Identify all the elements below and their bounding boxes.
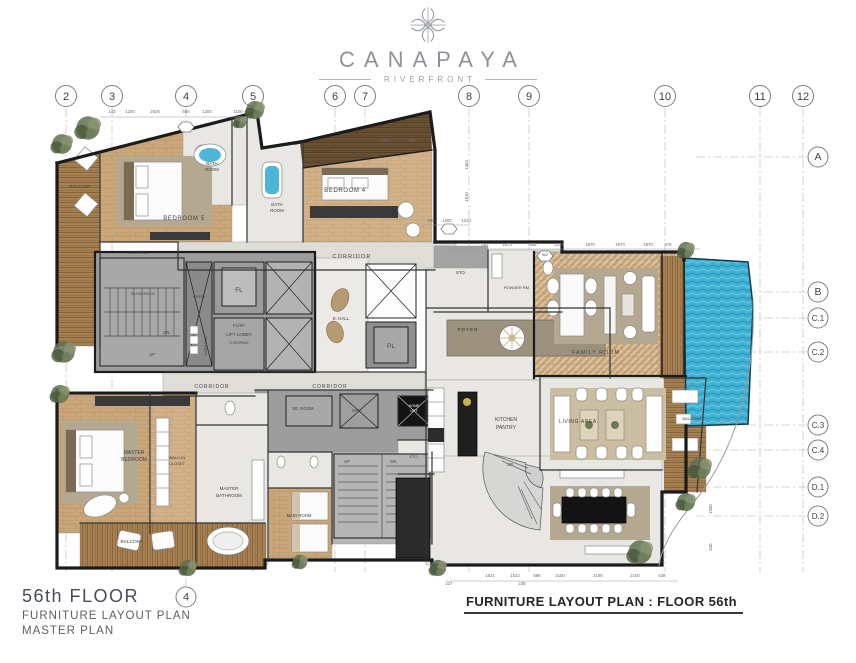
dining-chair xyxy=(566,524,574,533)
dimension-text: 1310 xyxy=(461,218,471,223)
grid-label-row-C.4: C.4 xyxy=(812,446,825,455)
dimension-text: 1870 xyxy=(585,242,595,247)
sheet-title: FURNITURE LAYOUT PLAN : FLOOR 56th xyxy=(464,594,743,614)
room-label: WALK-IN xyxy=(169,455,186,460)
dimension-text: 700 xyxy=(480,242,488,247)
room-label: DN. xyxy=(163,330,171,335)
dimension-text: 1870 xyxy=(643,242,653,247)
room-label: SAN. xyxy=(352,408,362,413)
plan-subtitle-1: FURNITURE LAYOUT PLAN xyxy=(22,610,191,622)
living-chair xyxy=(576,388,587,401)
room-label: BALCONY xyxy=(121,539,145,545)
dining-chair xyxy=(578,488,586,497)
room-balcony-left xyxy=(57,152,100,346)
dimension-text: 555 xyxy=(529,242,537,247)
room-label: BALCONY xyxy=(69,184,91,189)
grid-label-col-4: 4 xyxy=(183,91,189,103)
dimension-text: 378 xyxy=(664,242,672,247)
dimension-text: 1522 xyxy=(510,573,520,578)
hex-marker xyxy=(178,122,194,132)
bed4-pillow xyxy=(352,178,368,188)
bed5-pillow xyxy=(136,166,148,188)
dining-chair xyxy=(590,524,598,533)
room-label: W2 xyxy=(542,252,549,257)
room-label: CORRIDOR xyxy=(333,254,372,260)
dimension-text: 698 xyxy=(533,573,541,578)
bed4-chair xyxy=(398,202,414,218)
room-label: ROOM xyxy=(270,208,284,213)
maid-toilet xyxy=(277,456,285,468)
dimension-text: 2190 xyxy=(593,573,603,578)
dimension-text: 1873 xyxy=(502,242,512,247)
powder-toilet xyxy=(543,261,553,275)
dining-chair xyxy=(602,524,610,533)
dining-chair xyxy=(578,524,586,533)
master-side-table xyxy=(119,493,129,503)
master-headboard xyxy=(66,430,76,492)
bed4-pillow xyxy=(328,178,344,188)
room-label: KITCHEN xyxy=(495,417,517,423)
dining-chair-end xyxy=(627,503,635,517)
titleblock: 56th FLOOR FURNITURE LAYOUT PLAN MASTER … xyxy=(22,586,191,637)
plan-subtitle-2: MASTER PLAN xyxy=(22,625,191,637)
bed4-chair xyxy=(406,223,420,237)
rule-left xyxy=(319,79,371,80)
bed4-headboard xyxy=(322,168,388,175)
room-label: FL xyxy=(235,287,243,294)
brand-name: CANAPAYA xyxy=(330,47,526,73)
service-counter xyxy=(396,478,430,558)
room-label: E. HALL xyxy=(333,316,350,321)
room-label: UP xyxy=(344,459,350,464)
bathtub4-water xyxy=(265,166,279,194)
dining-table xyxy=(562,497,626,523)
dining-chair xyxy=(566,488,574,497)
room-label: GARBAGE xyxy=(203,336,208,356)
grid-label-col-11: 11 xyxy=(754,91,765,103)
room-label: DN. xyxy=(390,459,397,464)
room-label: LIFT LOBBY xyxy=(226,332,251,337)
room-maid-bath xyxy=(268,452,332,488)
dimension-text: 1500 xyxy=(708,504,713,514)
console xyxy=(560,470,624,478)
living-plant xyxy=(611,421,619,429)
brand-header: CANAPAYA RIVERFRONT xyxy=(0,4,856,84)
master-pillow xyxy=(80,436,92,458)
grid-label-row-D.1: D.1 xyxy=(812,483,825,492)
lounge-chair xyxy=(151,531,175,551)
dimension-text: 1083 xyxy=(381,138,391,143)
closet-island xyxy=(156,418,169,506)
dimension-text: 470 xyxy=(252,109,260,114)
bed5-pillow xyxy=(136,194,148,216)
room-label: BATHROOM xyxy=(216,493,242,498)
drawing-sheet: CANAPAYA RIVERFRONT xyxy=(0,0,856,663)
family-coffee-table xyxy=(622,294,634,316)
room-label: FOYER xyxy=(458,327,479,332)
dimension-text: 590 xyxy=(427,218,435,223)
bathtub5-water xyxy=(199,148,221,162)
room-label: EE. ROOM xyxy=(293,406,314,411)
room-label: PL xyxy=(387,343,395,350)
bed4-wardrobe xyxy=(310,206,398,218)
dimension-text: 1521 xyxy=(485,573,495,578)
grid-label-col-3: 3 xyxy=(109,91,115,103)
room-label: CORRIDOR xyxy=(194,384,229,390)
living-chair xyxy=(632,446,643,459)
dimension-text: 640 xyxy=(708,543,713,551)
room-label: MASTER xyxy=(220,486,240,491)
outdoor-sofa xyxy=(672,390,698,403)
family-chair xyxy=(585,278,597,294)
dining-chair xyxy=(614,488,622,497)
room-label: BALCONY xyxy=(682,416,701,421)
grid-label-row-C.2: C.2 xyxy=(812,348,825,357)
room-label: POWDER RM. xyxy=(504,285,530,290)
grid-label-row-D.2: D.2 xyxy=(812,512,825,521)
living-chair xyxy=(576,446,587,459)
dimension-text: 2235 xyxy=(554,242,564,247)
bed5-headboard xyxy=(124,162,134,220)
grid-label-col-6: 6 xyxy=(332,91,338,103)
dimension-text: 1300 xyxy=(442,218,452,223)
grid-label-row-B: B xyxy=(814,286,821,298)
room-label: PANTRY xyxy=(496,425,516,431)
master-wardrobe xyxy=(95,396,190,406)
room-label: STO. xyxy=(409,454,418,459)
room-label: BEDROOM xyxy=(121,457,147,463)
brand-subtitle: RIVERFRONT xyxy=(380,75,476,84)
bin xyxy=(190,346,198,354)
room-label: BALCONY xyxy=(312,149,333,154)
family-armchair xyxy=(624,326,637,339)
family-chair xyxy=(547,278,559,294)
room-label: UP xyxy=(507,462,513,467)
dimension-text: 2100 xyxy=(630,573,640,578)
grid-label-row-A: A xyxy=(814,151,821,163)
room-label: BEDROOM 4 xyxy=(324,188,365,194)
room-label: LIFT xyxy=(410,409,418,413)
room-label: CORRIDOR xyxy=(312,384,347,390)
grid-label-col-7: 7 xyxy=(362,91,368,103)
dimension-text: 565 xyxy=(182,109,190,114)
living-bench xyxy=(646,396,662,452)
bin xyxy=(190,326,198,334)
living-chair xyxy=(596,446,607,459)
dining-chair xyxy=(602,488,610,497)
room-label: STO. xyxy=(456,270,466,275)
grid-label-col-9: 9 xyxy=(526,91,532,103)
floor-title: 56th FLOOR xyxy=(22,586,191,607)
living-chair xyxy=(632,388,643,401)
dimension-text: 2100 xyxy=(555,573,565,578)
room-label: FL/SF xyxy=(233,323,246,328)
dimension-text: 1200 xyxy=(125,109,135,114)
grid-label-col-8: 8 xyxy=(466,91,472,103)
dining-chair xyxy=(590,488,598,497)
room-label: FAMILY ROOM xyxy=(572,350,620,356)
master-toilet xyxy=(225,401,235,415)
room-label: MAID ROOM xyxy=(287,513,312,518)
master-vanity xyxy=(252,460,264,520)
compass-rosette-icon xyxy=(405,4,451,46)
living-chair xyxy=(616,388,627,401)
dimension-text: 1200 xyxy=(202,109,212,114)
maid-toilet xyxy=(310,456,318,468)
grid-label-row-C.1: C.1 xyxy=(812,314,825,323)
island-plant xyxy=(463,398,471,406)
hex-marker xyxy=(441,224,457,234)
room-ehall xyxy=(316,258,368,372)
dining-chair-end xyxy=(553,503,561,517)
grid-label-col-2: 2 xyxy=(63,91,69,103)
room-label: RL/SM/PA/CE xyxy=(131,292,155,296)
grid-label-row-C.3: C.3 xyxy=(812,421,825,430)
room-label: MASTER xyxy=(124,450,145,456)
living-chair xyxy=(596,388,607,401)
room-label: TL/GR/F-/D- xyxy=(127,251,149,255)
bed5-wardrobe xyxy=(150,232,210,240)
dimension-text: 1510 xyxy=(464,192,469,202)
dimension-text: 950 xyxy=(408,138,416,143)
dimension-text: 227 xyxy=(445,581,453,586)
room-label: HOME xyxy=(409,404,420,408)
dining-chair xyxy=(614,524,622,533)
ee-room xyxy=(286,396,332,426)
dimension-text: 1403 xyxy=(464,160,469,170)
master-pillow xyxy=(80,464,92,486)
dimension-text: 2100 xyxy=(233,109,243,114)
rule-right xyxy=(485,79,537,80)
dimension-text: 1870 xyxy=(615,242,625,247)
dimension-text: 143 xyxy=(108,109,116,114)
room-label: TL/GR/PA/CL xyxy=(229,341,250,345)
family-sofa xyxy=(642,276,655,332)
living-chair xyxy=(616,446,627,459)
floor-plan: 23456789101112ABC.1C.2C.3C.4D.1D.24 xyxy=(0,0,856,663)
dimension-text: 2625 xyxy=(150,109,160,114)
bin xyxy=(190,336,198,344)
room-label: BEDROOM 5 xyxy=(163,216,204,222)
grid-label-col-12: 12 xyxy=(797,91,809,103)
room-label: CLOSET xyxy=(169,461,186,466)
room-label: UP xyxy=(149,352,155,357)
room-label: OPEN xyxy=(193,294,204,299)
family-table xyxy=(560,274,584,336)
room-label: LIVING AREA xyxy=(559,419,597,425)
family-armchair xyxy=(624,272,637,285)
dimension-text: 238 xyxy=(518,581,526,586)
dimension-text: 638 xyxy=(658,573,666,578)
powder-vanity xyxy=(492,254,502,278)
room-label: BATH xyxy=(271,202,282,207)
master-tub-inner xyxy=(213,532,243,550)
room-label: ROOM xyxy=(205,167,219,172)
grid-label-col-10: 10 xyxy=(659,91,671,103)
room-label: BATH xyxy=(206,161,217,166)
